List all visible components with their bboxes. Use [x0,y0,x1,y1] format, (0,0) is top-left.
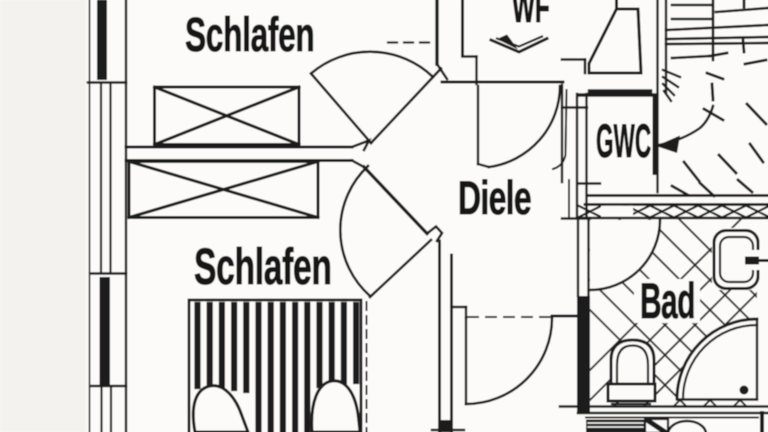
svg-text:GWC: GWC [596,115,651,167]
svg-text:Diele: Diele [458,172,531,225]
svg-text:Schlafen: Schlafen [185,7,314,61]
svg-text:Bad: Bad [640,273,695,329]
svg-text:Schlafen: Schlafen [194,239,332,296]
svg-text:WF: WF [512,0,550,32]
